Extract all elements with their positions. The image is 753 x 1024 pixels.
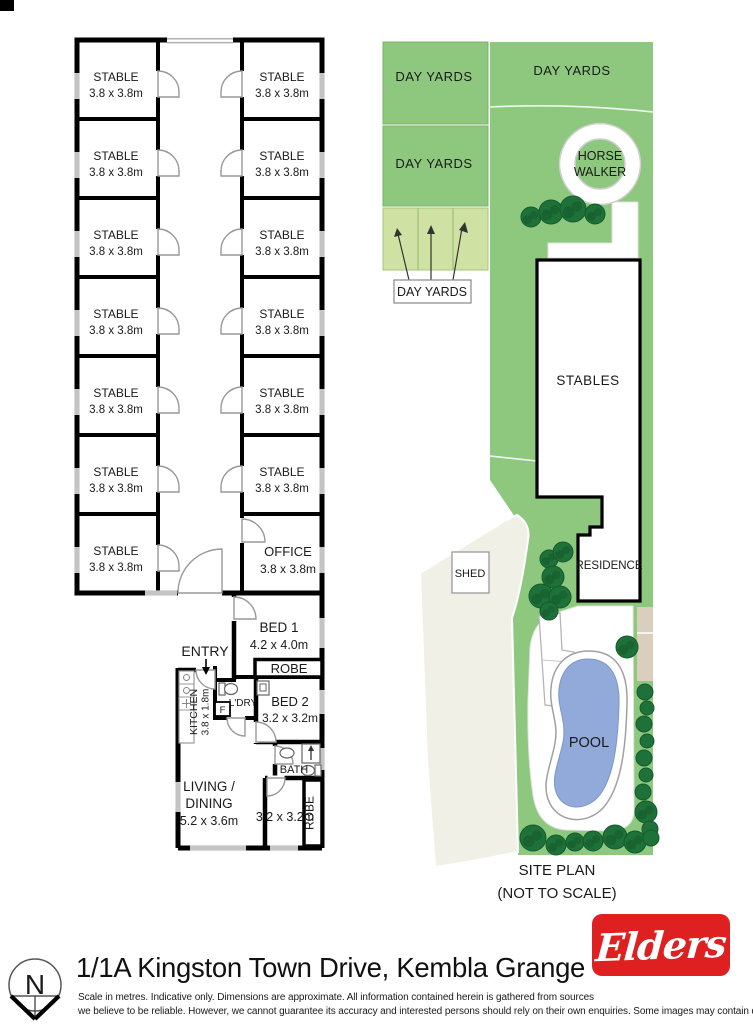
stable-room-dims: 3.8 x 3.8m <box>255 483 309 495</box>
window <box>319 618 324 648</box>
window <box>319 73 324 99</box>
stable-room-dims: 3.8 x 3.8m <box>89 246 143 258</box>
tree-shade <box>548 606 555 613</box>
door-swing-laundry <box>227 718 245 736</box>
pool-label: POOL <box>569 735 609 751</box>
tree-shade <box>592 835 600 843</box>
tree-shade <box>550 205 560 215</box>
tan-path <box>637 607 653 681</box>
horse-walker-label: WALKER <box>574 165 626 179</box>
stable-room-dims: 3.8 x 3.8m <box>255 404 309 416</box>
tree-icon <box>639 768 653 782</box>
north-arrow: N <box>8 956 64 1022</box>
stable-room-label: STABLE <box>93 228 138 242</box>
tree-icon <box>636 750 652 766</box>
floorplan-page: DAY YARDS DAY YARDS DAY YARDS HORSE WALK… <box>0 0 753 1024</box>
day-yards-label: DAY YARDS <box>397 285 467 299</box>
stable-room-label: STABLE <box>93 544 138 558</box>
day-yards-label: DAY YARDS <box>395 69 472 84</box>
window <box>74 73 79 99</box>
tree-shade <box>562 546 570 554</box>
stable-room-label: STABLE <box>259 228 304 242</box>
bed1-dims: 4.2 x 4.0m <box>250 638 308 652</box>
tree-shade <box>552 570 561 579</box>
kitchen-dims: 3.8 x 1.8m <box>201 689 212 736</box>
living-label: DINING <box>185 796 232 811</box>
tree-shade <box>634 835 643 844</box>
disclaimer-line: we believe to be reliable. However, we c… <box>78 1005 753 1019</box>
stable-room-dims: 3.8 x 3.8m <box>89 167 143 179</box>
door-swing-room3 <box>267 778 285 796</box>
office-label: OFFICE <box>264 544 312 559</box>
tree-shade <box>572 201 582 211</box>
tree-icon <box>637 684 653 700</box>
stable-room-dims: 3.8 x 3.8m <box>89 88 143 100</box>
disclaimer: Scale in metres. Indicative only. Dimens… <box>78 991 753 1018</box>
stable-room-label: STABLE <box>93 465 138 479</box>
tree-icon <box>640 701 654 715</box>
plan-canvas: DAY YARDS DAY YARDS DAY YARDS HORSE WALK… <box>0 0 753 940</box>
stable-room-label: STABLE <box>93 307 138 321</box>
robe1-label: ROBE <box>271 661 308 676</box>
residence-floor-plan: BED 1 4.2 x 4.0m ROBE ENTRY KITCHEN 3.8 … <box>175 593 324 851</box>
residence-label: RESIDENCE <box>575 560 642 572</box>
bath-label: BATH <box>280 764 309 776</box>
tree-shade <box>532 830 542 840</box>
stable-room-label: STABLE <box>259 307 304 321</box>
window <box>190 845 246 850</box>
stable-room-label: STABLE <box>93 386 138 400</box>
stable-room-dims: 3.8 x 3.8m <box>255 246 309 258</box>
window <box>319 152 324 178</box>
window <box>319 231 324 257</box>
window <box>74 547 79 573</box>
basin-icon <box>280 748 294 758</box>
window <box>74 310 79 336</box>
window <box>319 389 324 415</box>
horse-walker-center <box>575 139 625 189</box>
stable-room-label: STABLE <box>93 70 138 84</box>
tree-shade <box>540 589 550 599</box>
window <box>74 389 79 415</box>
tree-icon <box>640 734 654 748</box>
tree-shade <box>594 208 602 216</box>
window <box>270 845 298 850</box>
horse-walker: HORSE WALKER <box>560 124 641 205</box>
stable-room-dims: 3.8 x 3.8m <box>255 167 309 179</box>
window <box>74 152 79 178</box>
laundry-label: L'DRY <box>229 698 258 709</box>
entry-label: ENTRY <box>181 643 229 659</box>
site-plan-caption: SITE PLAN <box>519 862 596 879</box>
stable-room-dims: 3.8 x 3.8m <box>89 404 143 416</box>
tree-shade <box>559 590 568 599</box>
corner-mark <box>0 0 14 11</box>
window <box>145 590 177 595</box>
washer-icon <box>257 681 269 695</box>
toilet-tank-icon <box>315 765 321 776</box>
window <box>319 690 324 714</box>
stable-room-dims: 3.8 x 3.8m <box>89 562 143 574</box>
stable-room-label: STABLE <box>259 386 304 400</box>
site-plan-caption: (NOT TO SCALE) <box>497 885 616 902</box>
door-swing-bed1 <box>234 597 256 619</box>
stable-room-dims: 3.8 x 3.8m <box>89 325 143 337</box>
window <box>74 231 79 257</box>
window <box>175 782 180 812</box>
tree-shade <box>555 839 563 847</box>
site-plan: DAY YARDS DAY YARDS DAY YARDS HORSE WALK… <box>383 42 659 902</box>
fridge-label: F <box>220 705 226 716</box>
day-yards-label: DAY YARDS <box>395 156 472 171</box>
door-swing-bed2 <box>256 722 276 742</box>
living-label: LIVING / <box>183 779 235 794</box>
window <box>319 468 324 494</box>
stable-room-dims: 3.8 x 3.8m <box>89 483 143 495</box>
window <box>319 310 324 336</box>
stable-room-dims: 3.8 x 3.8m <box>255 325 309 337</box>
tree-icon <box>635 784 651 800</box>
north-letter: N <box>25 969 45 1000</box>
tree-shade <box>614 830 624 840</box>
stable-room-label: STABLE <box>259 70 304 84</box>
day-yards-label: DAY YARDS <box>533 63 610 78</box>
bed2-dims: 3.2 x 3.2m <box>262 711 318 725</box>
tree-shade <box>574 837 581 844</box>
window <box>74 468 79 494</box>
tree-shade <box>626 640 635 649</box>
toilet-icon <box>225 684 238 695</box>
stable-room-label: STABLE <box>259 149 304 163</box>
bed2-label: BED 2 <box>271 694 309 709</box>
window <box>319 547 324 573</box>
horse-walker-label: HORSE <box>578 149 622 163</box>
tree-icon <box>643 830 659 846</box>
tree-icon <box>636 716 652 732</box>
stable-floor-plan: STABLE3.8 x 3.8mSTABLE3.8 x 3.8mSTABLE3.… <box>74 37 324 596</box>
living-dims: 5.2 x 3.6m <box>180 814 238 828</box>
disclaimer-line: Scale in metres. Indicative only. Dimens… <box>78 991 753 1005</box>
tree-shade <box>530 211 538 219</box>
office-dims: 3.8 x 3.8m <box>260 562 316 576</box>
bed1-label: BED 1 <box>259 620 298 635</box>
brand-wordmark: Elders <box>594 920 727 969</box>
elders-logo: Elders <box>592 914 730 976</box>
tree-shade <box>645 805 654 814</box>
stable-room-dims: 3.8 x 3.8m <box>255 88 309 100</box>
kitchen-label: KITCHEN <box>188 689 200 735</box>
stable-room-label: STABLE <box>93 149 138 163</box>
property-address: 1/1A Kingston Town Drive, Kembla Grange <box>76 952 585 984</box>
stables-label: STABLES <box>556 373 619 388</box>
robe2-label: ROBE <box>303 796 317 830</box>
shed-label: SHED <box>455 568 486 580</box>
stable-room-label: STABLE <box>259 465 304 479</box>
